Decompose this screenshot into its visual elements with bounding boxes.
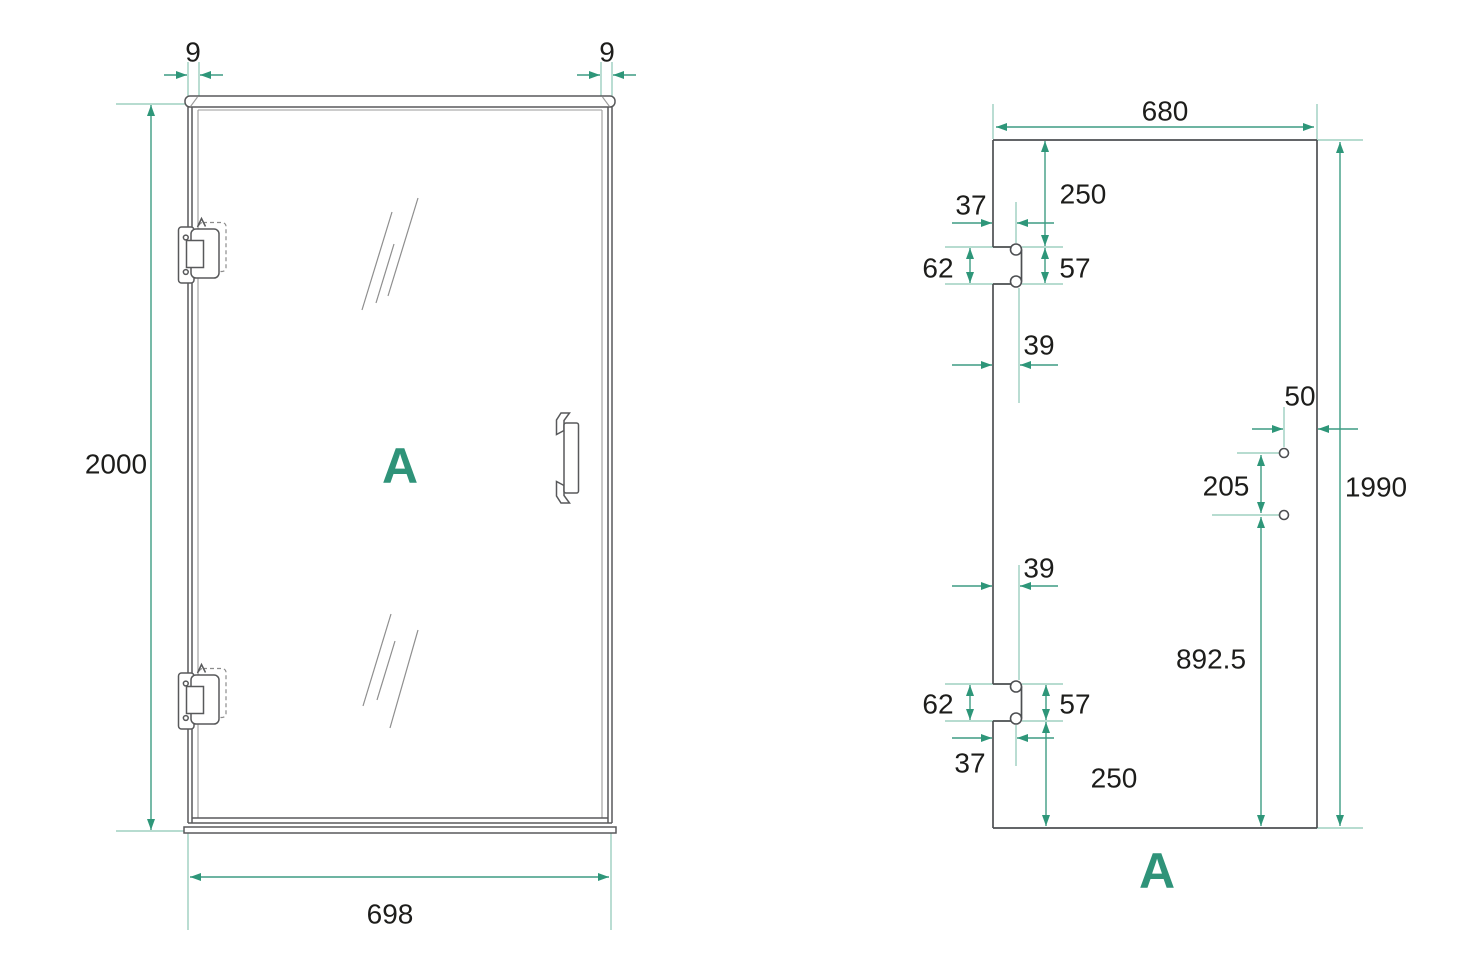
door-dimension-drawing: 9 9 2000 698 A bbox=[0, 0, 1482, 959]
dim-label-handle-from-edge: 50 bbox=[1284, 381, 1315, 412]
dim-label-hinge-bottom-cutout-height: 62 bbox=[922, 689, 953, 720]
dim-label-frame-offset-right: 9 bbox=[599, 37, 615, 68]
hinge-cutout-bottom bbox=[993, 681, 1022, 724]
glass-extension-lines bbox=[945, 104, 1363, 828]
dim-label-hinge-bottom-hole-spacing: 57 bbox=[1059, 689, 1090, 720]
dim-label-handle-from-bottom: 892.5 bbox=[1176, 644, 1246, 675]
glass-reflection-lower bbox=[363, 614, 418, 728]
hinge-cutout-top bbox=[993, 244, 1022, 287]
dim-label-hinge-top-cutout-height: 62 bbox=[922, 253, 953, 284]
dim-label-hinge-top-depth: 37 bbox=[955, 190, 986, 221]
handle-hole-bottom bbox=[1280, 511, 1289, 520]
front-view-label: A bbox=[382, 438, 418, 494]
glass-panel-outline bbox=[993, 140, 1317, 828]
dim-label-handle-hole-spacing: 205 bbox=[1203, 471, 1250, 502]
hinge-bottom bbox=[179, 665, 227, 730]
dim-label-glass-width: 680 bbox=[1142, 96, 1189, 127]
dim-label-hinge-top-center-offset: 39 bbox=[1023, 330, 1054, 361]
dim-label-glass-height: 1990 bbox=[1345, 472, 1407, 503]
door-handle bbox=[557, 413, 579, 503]
dim-label-frame-offset-left: 9 bbox=[185, 37, 201, 68]
front-view: 9 9 2000 698 A bbox=[85, 37, 636, 931]
dim-label-door-width: 698 bbox=[367, 899, 414, 930]
dim-label-hinge-bottom-depth: 37 bbox=[954, 748, 985, 779]
dim-label-door-height: 2000 bbox=[85, 449, 147, 480]
glass-reflection-upper bbox=[362, 198, 418, 310]
dim-label-hinge-top-hole-spacing: 57 bbox=[1059, 253, 1090, 284]
dim-label-hinge-bottom-from-bottom: 250 bbox=[1091, 763, 1138, 794]
hinge-top bbox=[179, 219, 227, 284]
front-extension-lines bbox=[116, 62, 612, 930]
dim-label-hinge-top-from-top: 250 bbox=[1060, 179, 1107, 210]
handle-hole-top bbox=[1280, 449, 1289, 458]
dim-label-hinge-bottom-center-offset: 39 bbox=[1023, 553, 1054, 584]
glass-view-label: A bbox=[1139, 843, 1175, 899]
technical-drawing-page: 9 9 2000 698 A bbox=[0, 0, 1482, 959]
glass-panel-view: 680 250 37 62 57 39 50 205 1990 39 892.5… bbox=[922, 96, 1407, 900]
